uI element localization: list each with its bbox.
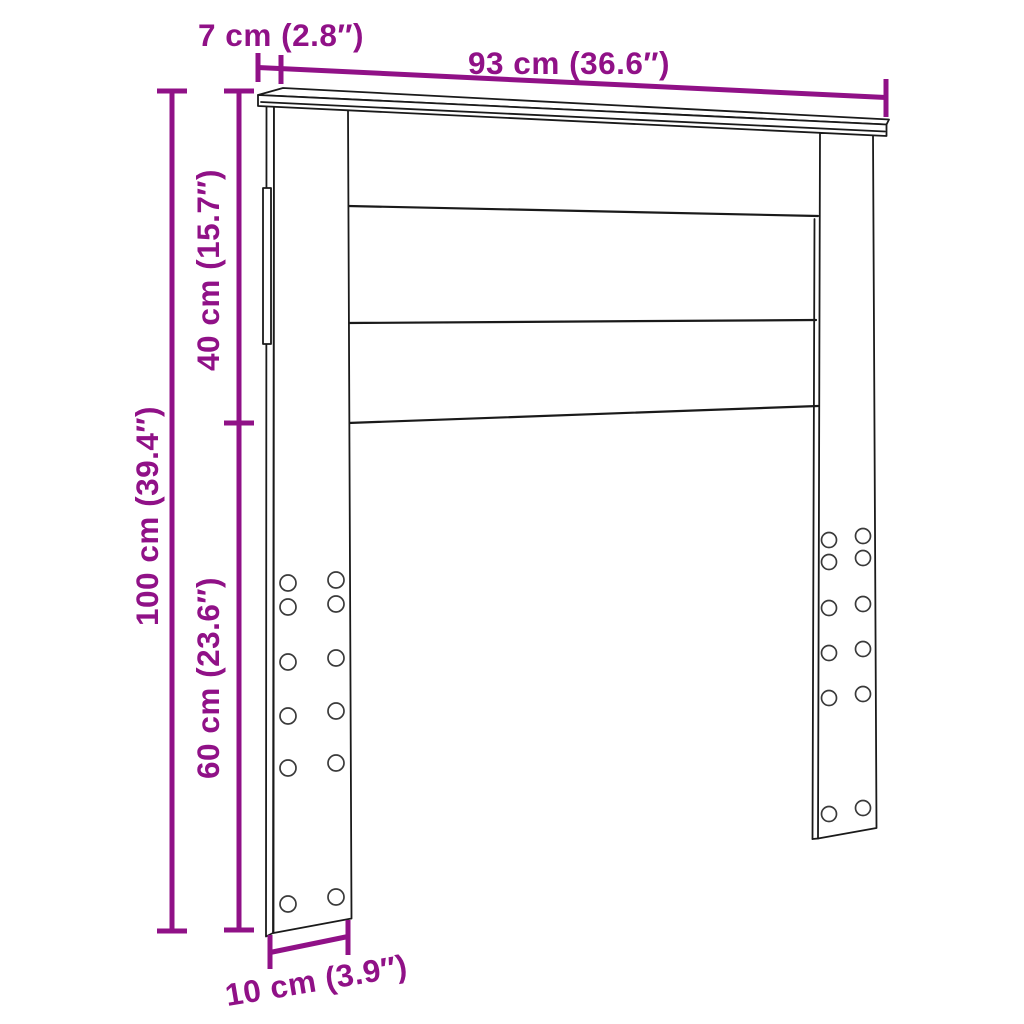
left-leg-wall-strip (263, 188, 271, 344)
screw-hole (822, 555, 837, 570)
screw-hole (822, 601, 837, 616)
screw-hole (328, 703, 344, 719)
dim-total-height: 100 cm (39.4″) (129, 91, 187, 931)
headboard-slats (348, 206, 818, 423)
screw-hole (280, 599, 296, 615)
screw-hole (328, 650, 344, 666)
right-leg-inner-edge (813, 219, 815, 839)
dimension-diagram: 7 cm (2.8″) 93 cm (36.6″) 100 cm (39.4″)… (0, 0, 1024, 1024)
headboard-drawing (258, 88, 889, 937)
screw-hole (280, 896, 296, 912)
screw-hole (856, 687, 871, 702)
screw-hole (856, 529, 871, 544)
screw-hole (822, 533, 837, 548)
slat-divider-2 (348, 320, 816, 323)
left-leg (263, 106, 352, 937)
screw-hole (822, 807, 837, 822)
right-leg-bottom-edge (813, 839, 819, 840)
screw-hole (856, 597, 871, 612)
screw-hole (856, 551, 871, 566)
screw-hole (280, 654, 296, 670)
screw-hole (822, 646, 837, 661)
screw-hole (856, 801, 871, 816)
right-leg-front-face (818, 133, 877, 839)
dim-label-upper-section-height: 40 cm (15.7″) (190, 169, 226, 371)
dim-label-total-width: 93 cm (36.6″) (468, 45, 670, 81)
screw-hole (328, 889, 344, 905)
dim-label-leg-depth: 10 cm (3.9″) (223, 947, 410, 1013)
screw-hole (280, 708, 296, 724)
screw-hole (856, 642, 871, 657)
screw-hole (328, 755, 344, 771)
screw-hole (328, 596, 344, 612)
dim-section-heights: 40 cm (15.7″) 60 cm (23.6″) (190, 91, 254, 930)
dim-leg-depth: 10 cm (3.9″) (223, 920, 410, 1013)
screw-hole (280, 760, 296, 776)
diagram-canvas: 7 cm (2.8″) 93 cm (36.6″) 100 cm (39.4″)… (0, 0, 1024, 1024)
slat-divider-3 (348, 406, 818, 423)
dimension-line (270, 937, 348, 953)
screw-hole (822, 691, 837, 706)
left-leg-front-face (274, 106, 352, 934)
dim-label-top-depth: 7 cm (2.8″) (198, 17, 364, 53)
dimension-annotations: 7 cm (2.8″) 93 cm (36.6″) 100 cm (39.4″)… (129, 17, 886, 1013)
right-leg (813, 133, 877, 839)
dim-label-leg-section-height: 60 cm (23.6″) (190, 577, 226, 779)
slat-divider-1 (348, 206, 818, 216)
screw-hole (280, 575, 296, 591)
dim-label-total-height: 100 cm (39.4″) (129, 406, 165, 626)
screw-hole (328, 572, 344, 588)
